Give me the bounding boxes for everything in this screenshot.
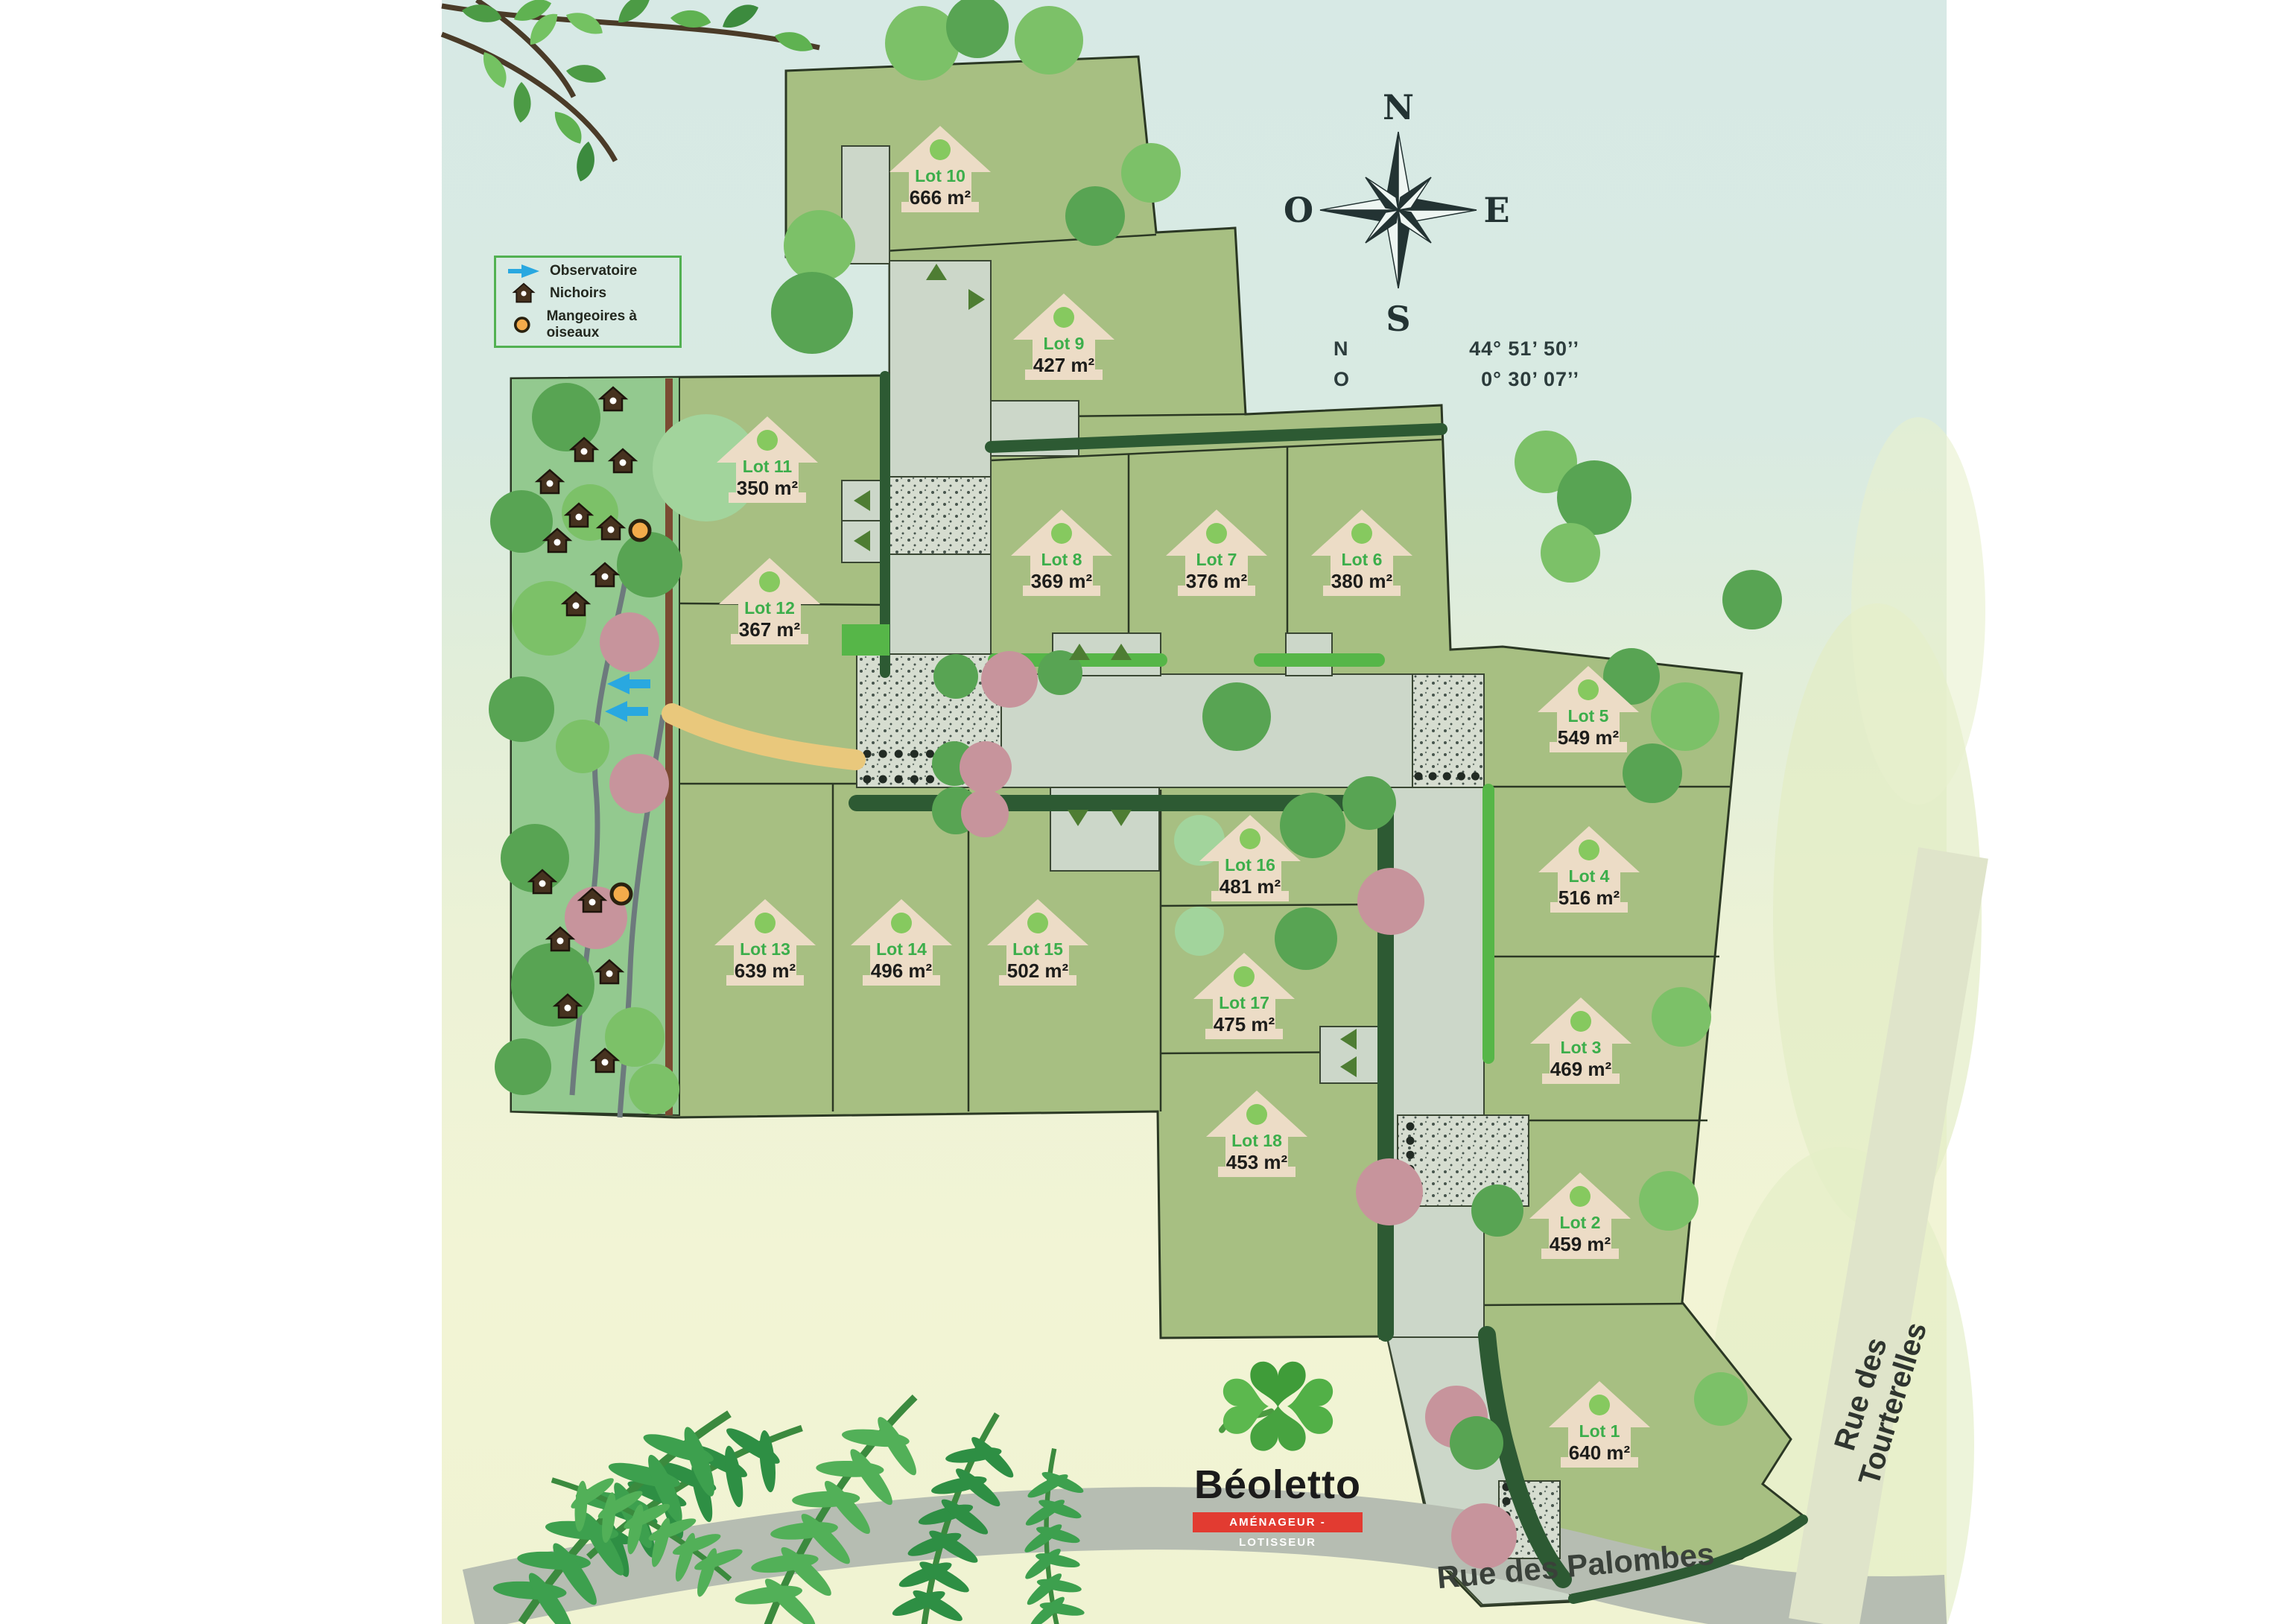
- lot-label: Lot 6: [1298, 550, 1425, 570]
- lot-marker-12[interactable]: Lot 12 367 m²: [706, 556, 833, 652]
- lot-label: Lot 18: [1193, 1131, 1320, 1151]
- compass-west-label: O: [1284, 190, 1313, 230]
- lot-area: 453 m²: [1193, 1151, 1320, 1174]
- legend-item-mangeoires: Mangeoires à oiseaux: [496, 308, 679, 341]
- lot-label: Lot 17: [1181, 993, 1307, 1013]
- lot-label: Lot 14: [838, 939, 965, 960]
- lot-marker-3[interactable]: Lot 3 469 m²: [1518, 996, 1644, 1091]
- birdhouse-icon: [507, 282, 541, 305]
- observatory-arrow-icon: [507, 264, 541, 279]
- lot-label: Lot 9: [1000, 334, 1127, 354]
- lot-area: 469 m²: [1518, 1058, 1644, 1081]
- lot-area: 502 m²: [974, 960, 1101, 983]
- legend-label: Observatoire: [550, 263, 637, 279]
- clover-icon: [1213, 1348, 1343, 1468]
- compass-east-label: E: [1483, 190, 1509, 230]
- lot-area: 475 m²: [1181, 1013, 1307, 1036]
- lot-area: 350 m²: [704, 477, 831, 500]
- lot-area: 549 m²: [1525, 726, 1652, 749]
- lot-marker-13[interactable]: Lot 13 639 m²: [702, 898, 828, 993]
- lot-marker-1[interactable]: Lot 1 640 m²: [1536, 1380, 1663, 1475]
- lot-marker-10[interactable]: Lot 10 666 m²: [877, 124, 1003, 220]
- lot-area: 516 m²: [1526, 886, 1652, 910]
- lot-label: Lot 5: [1525, 706, 1652, 726]
- latitude-label: N: [1333, 334, 1372, 364]
- lot-label: Lot 4: [1526, 866, 1652, 886]
- bird-feeder-icon: [507, 315, 538, 334]
- lot-marker-11[interactable]: Lot 11 350 m²: [704, 415, 831, 510]
- lot-marker-2[interactable]: Lot 2 459 m²: [1517, 1171, 1643, 1266]
- compass-rose-icon: N E S O: [1284, 87, 1510, 339]
- lot-area: 481 m²: [1187, 875, 1313, 898]
- site-plan-page: N E S O: [0, 0, 2296, 1624]
- lot-marker-9[interactable]: Lot 9 427 m²: [1000, 292, 1127, 387]
- lot-marker-14[interactable]: Lot 14 496 m²: [838, 898, 965, 993]
- lot-label: Lot 13: [702, 939, 828, 960]
- legend-label: Mangeoires à oiseaux: [547, 308, 679, 341]
- longitude-value: 0° 30’ 07’’: [1372, 364, 1579, 395]
- map-legend: Observatoire Nichoirs Mangeoires à oisea…: [494, 256, 682, 348]
- lot-marker-15[interactable]: Lot 15 502 m²: [974, 898, 1101, 993]
- lot-label: Lot 10: [877, 166, 1003, 186]
- lot-area: 459 m²: [1517, 1233, 1643, 1256]
- lot-label: Lot 7: [1153, 550, 1280, 570]
- lot-label: Lot 15: [974, 939, 1101, 960]
- decor-branches: [442, 0, 819, 184]
- lot-marker-8[interactable]: Lot 8 369 m²: [998, 508, 1125, 603]
- lot-marker-7[interactable]: Lot 7 376 m²: [1153, 508, 1280, 603]
- latitude-value: 44° 51’ 50’’: [1372, 334, 1579, 364]
- lot-marker-5[interactable]: Lot 5 549 m²: [1525, 664, 1652, 760]
- longitude-row: O 0° 30’ 07’’: [1333, 364, 1579, 395]
- developer-logo: Béoletto AMÉNAGEUR - LOTISSEUR: [1170, 1348, 1386, 1532]
- lot-label: Lot 1: [1536, 1421, 1663, 1441]
- lot-label: Lot 3: [1518, 1038, 1644, 1058]
- lot-marker-6[interactable]: Lot 6 380 m²: [1298, 508, 1425, 603]
- lot-marker-16[interactable]: Lot 16 481 m²: [1187, 813, 1313, 909]
- lot-area: 427 m²: [1000, 354, 1127, 377]
- lot-marker-4[interactable]: Lot 4 516 m²: [1526, 825, 1652, 920]
- lot-label: Lot 11: [704, 457, 831, 477]
- longitude-label: O: [1333, 364, 1372, 395]
- lot-area: 367 m²: [706, 618, 833, 641]
- legend-label: Nichoirs: [550, 285, 606, 302]
- brand-name: Béoletto: [1170, 1462, 1386, 1508]
- lot-label: Lot 2: [1517, 1213, 1643, 1233]
- legend-item-nichoirs: Nichoirs: [496, 282, 679, 305]
- brand-tagline: AMÉNAGEUR - LOTISSEUR: [1193, 1512, 1363, 1532]
- lot-marker-17[interactable]: Lot 17 475 m²: [1181, 951, 1307, 1047]
- lot-label: Lot 16: [1187, 855, 1313, 875]
- gps-coordinates: N 44° 51’ 50’’ O 0° 30’ 07’’: [1333, 334, 1579, 395]
- lot-label: Lot 8: [998, 550, 1125, 570]
- latitude-row: N 44° 51’ 50’’: [1333, 334, 1579, 364]
- compass-south-label: S: [1386, 299, 1410, 339]
- lot-area: 496 m²: [838, 960, 965, 983]
- site-map-graphic: N E S O: [0, 0, 2296, 1624]
- lot-area: 380 m²: [1298, 570, 1425, 593]
- lot-marker-18[interactable]: Lot 18 453 m²: [1193, 1089, 1320, 1184]
- lot-area: 666 m²: [877, 186, 1003, 209]
- lot-label: Lot 12: [706, 598, 833, 618]
- legend-item-observatoire: Observatoire: [496, 263, 679, 279]
- lot-area: 376 m²: [1153, 570, 1280, 593]
- lot-area: 640 m²: [1536, 1441, 1663, 1465]
- lot-area: 639 m²: [702, 960, 828, 983]
- compass-north-label: N: [1383, 87, 1414, 127]
- lot-area: 369 m²: [998, 570, 1125, 593]
